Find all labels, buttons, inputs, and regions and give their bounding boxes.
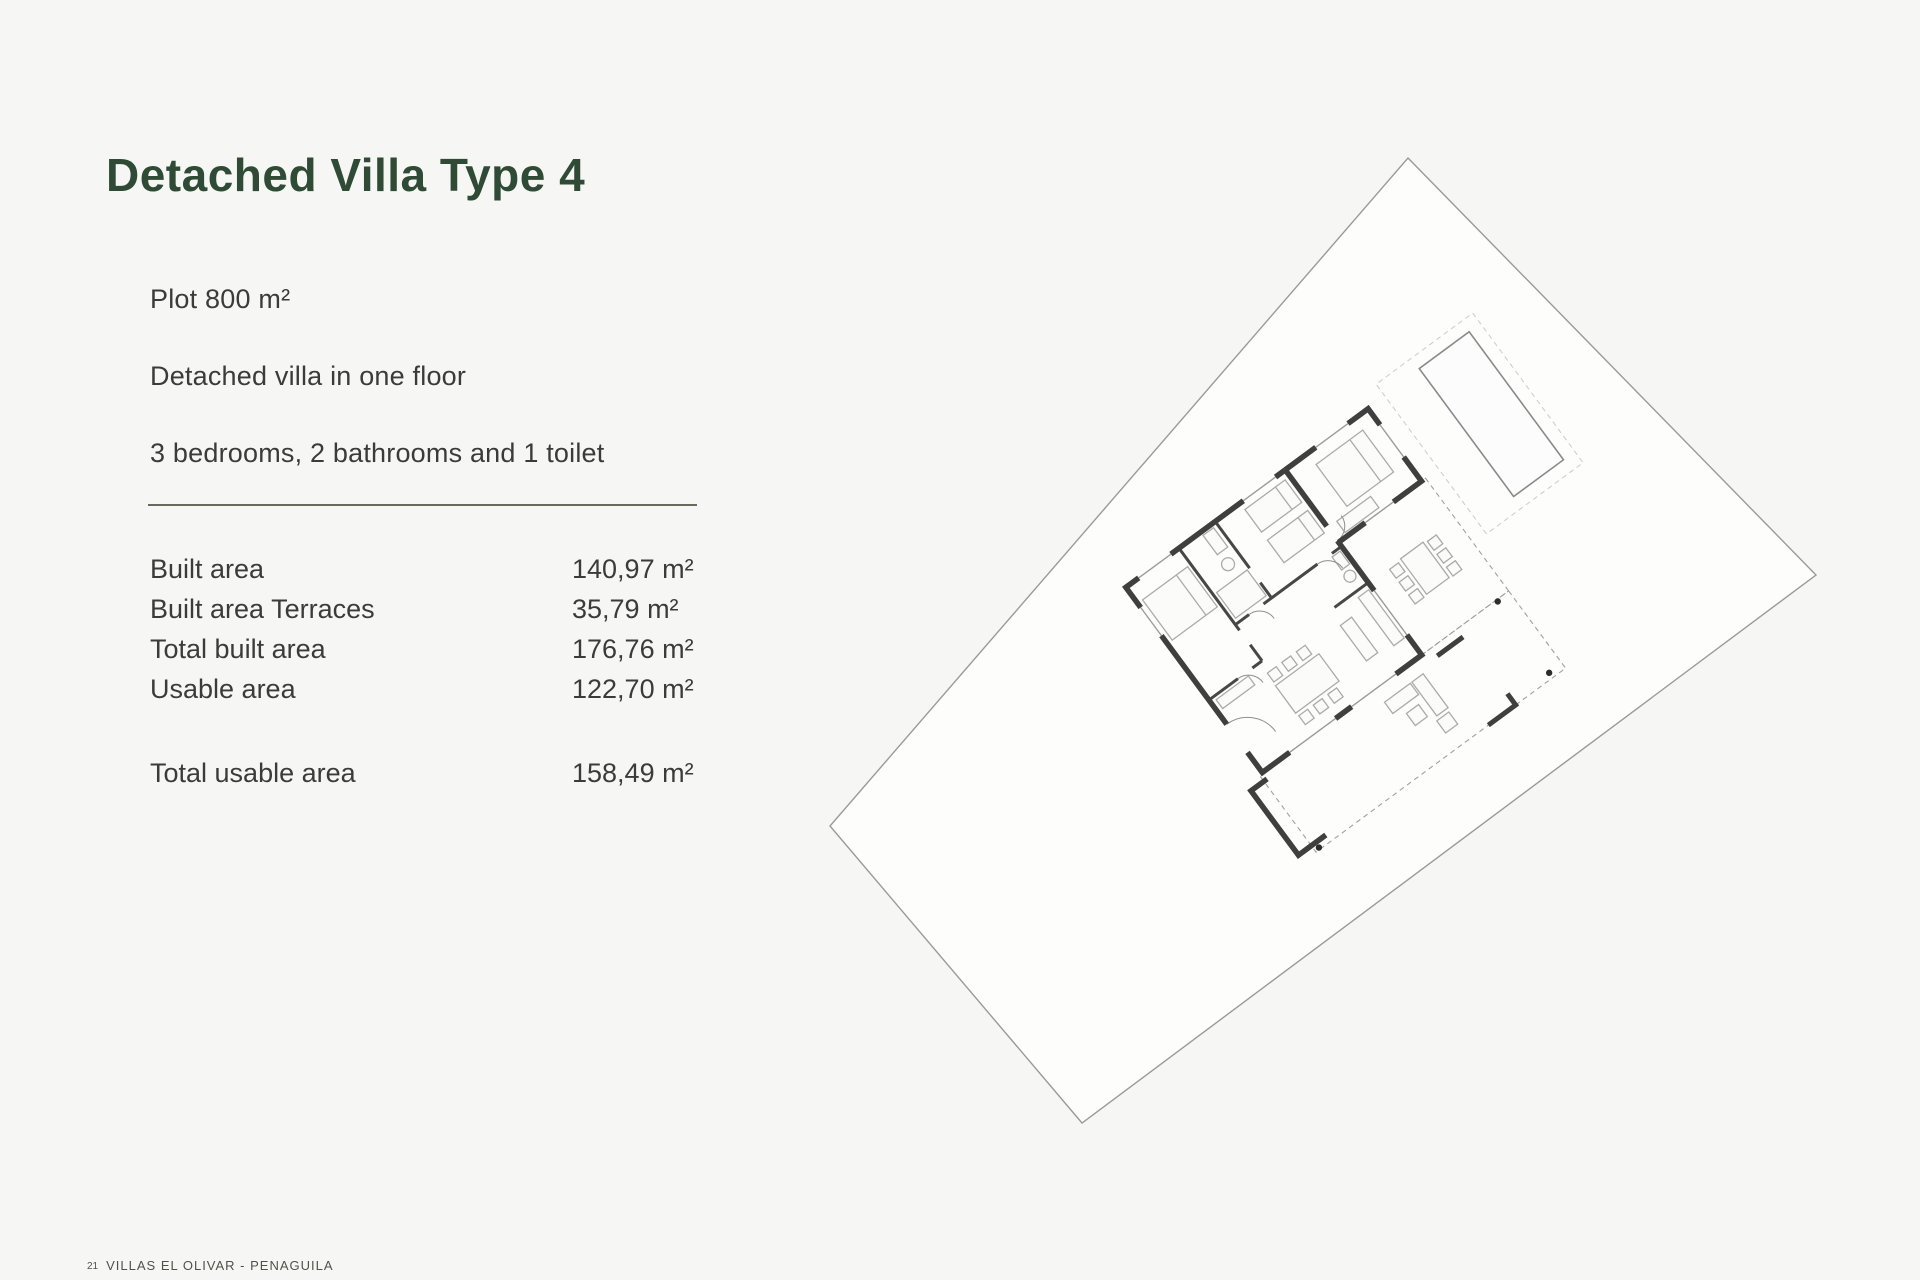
site-plan: [0, 0, 1920, 1280]
plot-boundary: [830, 158, 1816, 1123]
